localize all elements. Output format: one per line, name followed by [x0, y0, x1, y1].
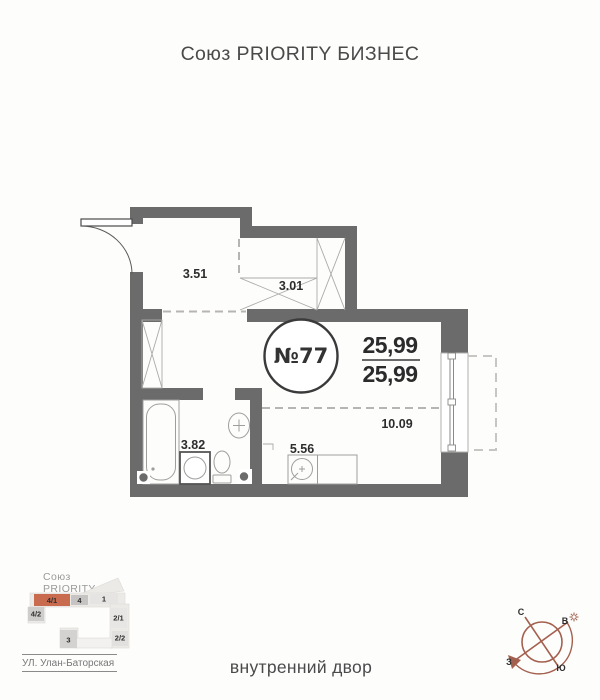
toilet-icon [213, 451, 231, 483]
floor-plan: 3.51 3.01 3.82 5.56 10.09 №77 25,99 25,9… [81, 207, 496, 497]
compass-north-label: С [518, 607, 525, 617]
apartment-number: №77 [274, 344, 329, 368]
room-label-kitchen: 5.56 [290, 442, 314, 456]
building-label-4-1: 4/1 [47, 596, 57, 605]
building-label-2-2: 2/2 [115, 634, 125, 643]
apartment-number-badge: №77 [265, 320, 338, 393]
complex-name-line1: Союз [43, 571, 71, 583]
building-label-1: 1 [102, 595, 106, 604]
room-label-living-room: 10.09 [381, 417, 412, 431]
compass-west-label: З [506, 657, 512, 667]
window-icon [441, 353, 468, 452]
wardrobe-closet-icon [240, 238, 345, 310]
area-living: 25,99 [362, 361, 417, 387]
compass-rose-icon: С В З Ю [506, 607, 578, 674]
area-total: 25,99 [362, 332, 417, 358]
building-label-4-2: 4/2 [31, 610, 41, 619]
building-label-2-1: 2/1 [113, 614, 123, 623]
floorplan-page: Союз PRIORITY БИЗНЕС [0, 0, 600, 700]
page-title: Союз PRIORITY БИЗНЕС [181, 43, 420, 65]
floorplan-canvas: Союз PRIORITY БИЗНЕС [0, 0, 600, 700]
compass-south-label: Ю [556, 663, 565, 673]
corridor-wardrobe-icon [142, 320, 162, 388]
street-label: УЛ. Улан-Баторская [22, 658, 114, 669]
street-label-group: УЛ. Улан-Баторская [22, 655, 117, 672]
room-label-bathroom: 3.82 [181, 438, 205, 452]
entry-door-icon [81, 219, 132, 274]
sun-icon [570, 613, 579, 622]
balcony-outline [468, 356, 496, 450]
area-fraction: 25,99 25,99 [362, 332, 420, 387]
washing-machine-icon [180, 452, 210, 484]
site-plan: Союз PRIORITY 4/1 4 1 4/2 2/1 2/2 3 [22, 571, 129, 672]
compass-east-label: В [562, 616, 569, 626]
sink-icon [229, 413, 250, 438]
building-label-3: 3 [66, 636, 70, 645]
room-label-wardrobe: 3.01 [279, 279, 303, 293]
room-label-hallway: 3.51 [183, 267, 207, 281]
courtyard-label: внутренний двор [230, 657, 372, 677]
